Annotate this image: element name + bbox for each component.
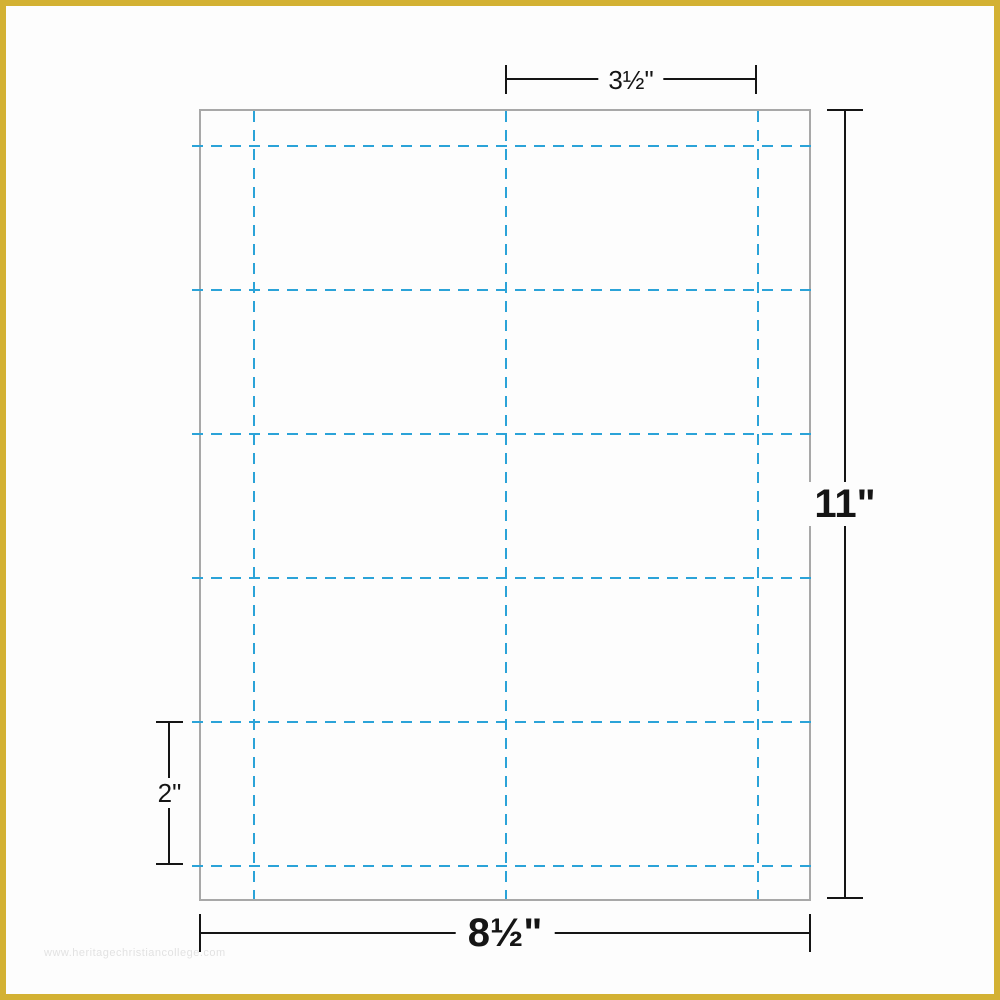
horizontal-cut-line: [192, 577, 818, 579]
horizontal-cut-line: [192, 721, 818, 723]
dimension-sheet-width: 8½": [199, 914, 811, 952]
card-height-label: 2": [148, 778, 192, 808]
dimension-tick: [827, 109, 863, 111]
template-page: 3½" 11" 2" 8½" www.heritagechristiancoll…: [0, 0, 1000, 1000]
horizontal-cut-line: [192, 865, 818, 867]
watermark-text: www.heritagechristiancollege.com: [44, 947, 226, 959]
dimension-tick: [505, 65, 507, 94]
dimension-tick: [156, 863, 183, 865]
horizontal-cut-line: [192, 433, 818, 435]
horizontal-cut-line: [192, 289, 818, 291]
dimension-tick: [755, 65, 757, 94]
dimension-tick: [809, 914, 811, 952]
vertical-cut-line: [253, 111, 255, 899]
card-width-label: 3½": [598, 65, 663, 95]
vertical-cut-line: [505, 111, 507, 899]
horizontal-cut-line: [192, 145, 818, 147]
dimension-card-width: 3½": [505, 65, 757, 94]
dimension-sheet-height: 11": [827, 109, 863, 899]
sheet-height-label: 11": [802, 482, 887, 526]
dimension-tick: [156, 721, 183, 723]
sheet-width-label: 8½": [456, 911, 555, 955]
vertical-cut-line: [757, 111, 759, 899]
dimension-tick: [827, 897, 863, 899]
sheet: [199, 109, 811, 901]
dimension-card-height: 2": [156, 721, 183, 865]
